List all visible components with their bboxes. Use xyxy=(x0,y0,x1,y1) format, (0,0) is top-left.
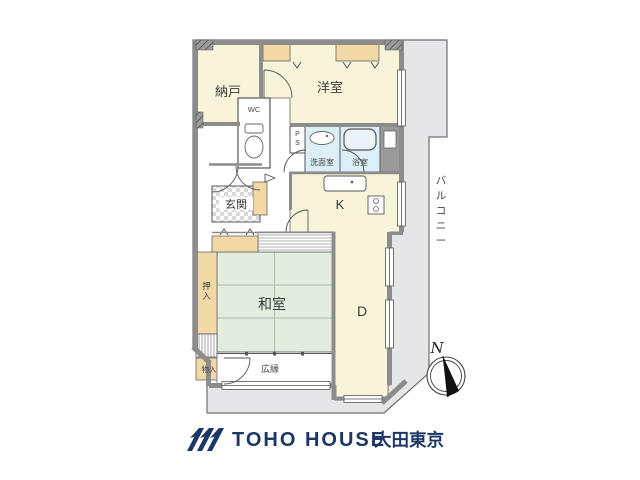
floorplan-canvas: 納戸 WC 洋室 P S 洗面室 浴室 玄関 K D 和室 押 入 物入 広縁 … xyxy=(0,0,640,480)
brand-name: TOHO HOUSE xyxy=(232,429,386,451)
label-ps-p: P xyxy=(295,131,300,138)
label-monoiri: 物入 xyxy=(202,364,217,374)
window-hiroen xyxy=(222,382,330,390)
sink-icon xyxy=(310,132,334,145)
label-balcony: バ ル コ ニ ー xyxy=(436,175,447,247)
label-ps-s: S xyxy=(295,140,300,147)
kitchen-counter-icon xyxy=(324,176,366,191)
toilet-tank-icon xyxy=(245,124,263,133)
svg-text:コ: コ xyxy=(436,205,447,217)
brand-region: 大田東京 xyxy=(374,430,444,450)
brand-logo-icon xyxy=(187,428,224,451)
closet-strip-right xyxy=(336,44,379,61)
toilet-icon xyxy=(245,136,263,158)
label-washitsu: 和室 xyxy=(258,296,286,312)
compass-north-label: N xyxy=(429,339,444,357)
closet-strip-left xyxy=(263,44,290,61)
floorplan-page: 納戸 WC 洋室 P S 洗面室 浴室 玄関 K D 和室 押 入 物入 広縁 … xyxy=(0,0,640,480)
label-wc: WC xyxy=(248,105,261,114)
label-nando: 納戸 xyxy=(215,84,241,99)
window-kitchen xyxy=(398,182,406,226)
faucet-icon xyxy=(326,135,328,137)
shoe-cabinet xyxy=(253,182,267,215)
svg-text:ニ: ニ xyxy=(436,220,447,232)
label-youshitsu: 洋室 xyxy=(317,80,343,95)
label-genkan: 玄関 xyxy=(225,197,247,211)
kitchen-faucet-icon xyxy=(351,181,354,184)
bathtub-icon xyxy=(344,129,376,150)
svg-text:ル: ル xyxy=(436,190,447,202)
label-dining: D xyxy=(357,303,367,319)
label-hiroen: 広縁 xyxy=(261,363,279,374)
compass: N xyxy=(427,339,465,397)
svg-text:バ: バ xyxy=(436,175,447,187)
window-dining-lower xyxy=(386,300,394,348)
label-yokushitsu: 浴室 xyxy=(352,157,368,167)
label-oshiire-1: 押 xyxy=(202,281,211,291)
wood-strip xyxy=(258,232,332,252)
window-bump xyxy=(344,396,382,403)
label-oshiire-2: 入 xyxy=(202,291,211,301)
label-kitchen: K xyxy=(336,197,345,212)
svg-text:ー: ー xyxy=(436,235,447,247)
brand-footer: TOHO HOUSE 大田東京 xyxy=(187,428,444,451)
duct-space xyxy=(380,126,401,172)
label-senmenshitsu: 洗面室 xyxy=(310,157,334,167)
window-dining-upper xyxy=(386,248,394,286)
window-youshitsu xyxy=(398,70,406,126)
